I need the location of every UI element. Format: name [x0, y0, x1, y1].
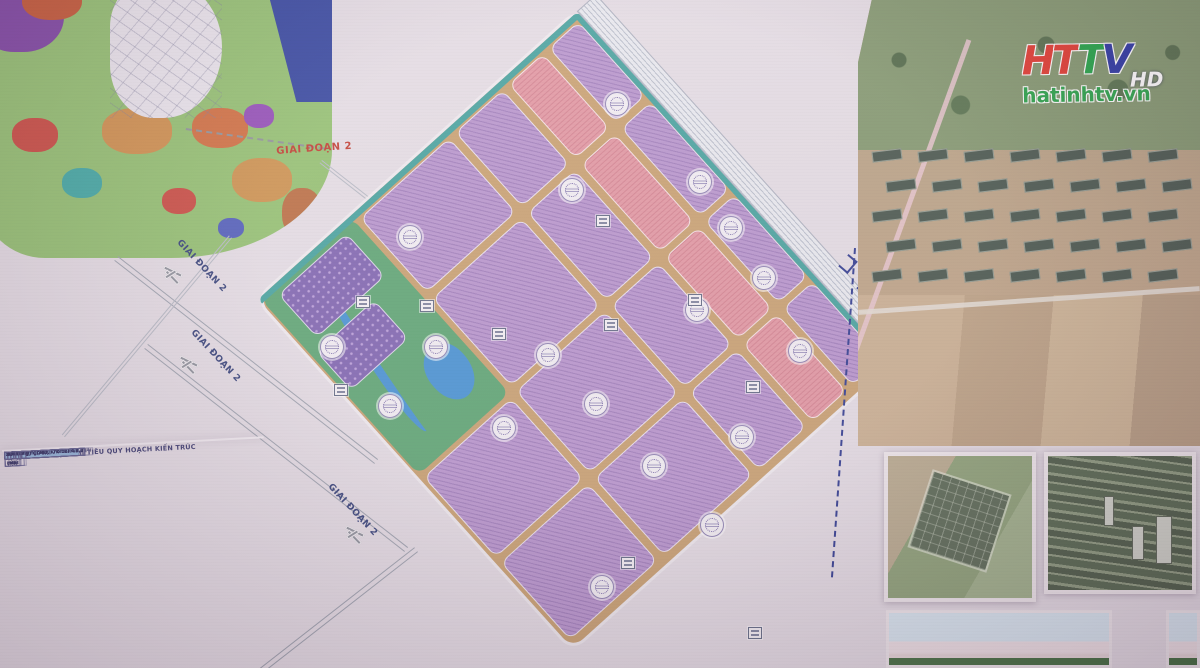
- htv-logo: HTTV HD hatinhtv.vn: [1021, 38, 1197, 121]
- factory-building: [1147, 268, 1178, 283]
- plot-label-chip: [604, 319, 618, 331]
- factory-building: [917, 148, 948, 163]
- factory-building: [871, 268, 902, 283]
- plot-label-chip: [746, 381, 760, 393]
- plot-emblem: [688, 170, 712, 194]
- tv-photo-of-planning-boards: GIAI ĐOẠN 2 GIAI ĐOẠN 2 GIAI ĐOẠN 2 GIAI…: [0, 0, 1200, 668]
- factory-building: [1115, 238, 1146, 253]
- factory-building: [1101, 208, 1132, 223]
- render-panel-city: [1044, 452, 1196, 594]
- factory-building: [1023, 238, 1054, 253]
- factory-building: [963, 148, 994, 163]
- zone-patch: [62, 168, 102, 198]
- plot-emblem: [788, 339, 812, 363]
- plot-label-chip: [621, 557, 635, 569]
- sketch-road: [233, 547, 418, 668]
- plot-emblem: [536, 343, 560, 367]
- plot-label-chip: [596, 215, 610, 227]
- master-plan: [258, 11, 892, 648]
- plot-label-chip: [492, 328, 506, 340]
- factory-building: [917, 268, 948, 283]
- factory-building: [1147, 208, 1178, 223]
- tower-building: [1132, 526, 1144, 560]
- plot-label-chip: [748, 627, 762, 639]
- factory-building: [1101, 148, 1132, 163]
- plot-emblem: [700, 513, 724, 537]
- logo-website: hatinhtv.vn: [1022, 81, 1151, 107]
- tower-building: [1104, 496, 1114, 526]
- plot-emblem: [320, 335, 344, 359]
- city-center-area: [110, 0, 222, 118]
- zone-patch: [218, 218, 244, 238]
- zone-patch: [282, 188, 322, 238]
- factory-building: [1161, 238, 1192, 253]
- factory-building: [1055, 268, 1086, 283]
- factory-building: [1161, 178, 1192, 193]
- factory-building: [1069, 178, 1100, 193]
- sea-area: [232, 0, 332, 102]
- plot-emblem: [642, 454, 666, 478]
- factory-building: [1101, 268, 1132, 283]
- plot-emblem: [719, 216, 743, 240]
- factory-building: [1069, 238, 1100, 253]
- factory-building: [871, 208, 902, 223]
- factory-building: [977, 178, 1008, 193]
- factory-building: [1009, 208, 1040, 223]
- plot-emblem: [398, 225, 422, 249]
- ground-line: [889, 658, 1109, 665]
- regional-landuse-map: [0, 0, 332, 258]
- road-cross-section: [886, 610, 1112, 668]
- tower-building: [1156, 516, 1172, 564]
- factory-building: [1023, 178, 1054, 193]
- ground-line: [1169, 658, 1197, 665]
- interchange-icon: [158, 262, 187, 289]
- factory-building: [1009, 268, 1040, 283]
- plot-emblem: [492, 416, 516, 440]
- zone-patch: [232, 158, 292, 202]
- factory-building: [931, 238, 962, 253]
- road-cross-section-partial: [1166, 610, 1200, 668]
- table-cell: 3.5: [4, 451, 16, 460]
- plot-emblem: [560, 178, 584, 202]
- zone-patch: [162, 188, 196, 214]
- plot-label-chip: [688, 294, 702, 306]
- factory-building: [885, 238, 916, 253]
- plot-emblem: [752, 266, 776, 290]
- logo-letter-t2: T: [1077, 37, 1102, 83]
- factory-building: [1147, 148, 1178, 163]
- factory-building: [963, 268, 994, 283]
- factory-building: [977, 238, 1008, 253]
- farm-fields: [858, 295, 1200, 446]
- render-panel-siteplan: [884, 452, 1036, 602]
- plot-emblem: [378, 394, 402, 418]
- plot-label-chip: [334, 384, 348, 396]
- planning-indicator-table: BẢNG TỔNG HỢP CHỈ TIÊU QUY HOẠCH KIẾN TR…: [2, 436, 264, 452]
- factory-building: [1055, 208, 1086, 223]
- logo-letter-v: V: [1101, 37, 1130, 83]
- logo-letter-h: H: [1021, 38, 1052, 85]
- factory-building: [1009, 148, 1040, 163]
- factory-building: [963, 208, 994, 223]
- zone-patch: [244, 104, 274, 128]
- plot-emblem: [584, 392, 608, 416]
- plot-emblem: [730, 425, 754, 449]
- plot-label-chip: [420, 300, 434, 312]
- factory-building: [871, 148, 902, 163]
- factory-building: [1115, 178, 1146, 193]
- plot-emblem: [424, 335, 448, 359]
- plot-emblem: [590, 575, 614, 599]
- plot-emblem: [605, 92, 629, 116]
- zone-patch: [12, 118, 58, 152]
- plot-label-chip: [356, 296, 370, 308]
- logo-letter-t1: T: [1052, 38, 1078, 84]
- factory-building: [931, 178, 962, 193]
- factory-building: [917, 208, 948, 223]
- factory-building: [1055, 148, 1086, 163]
